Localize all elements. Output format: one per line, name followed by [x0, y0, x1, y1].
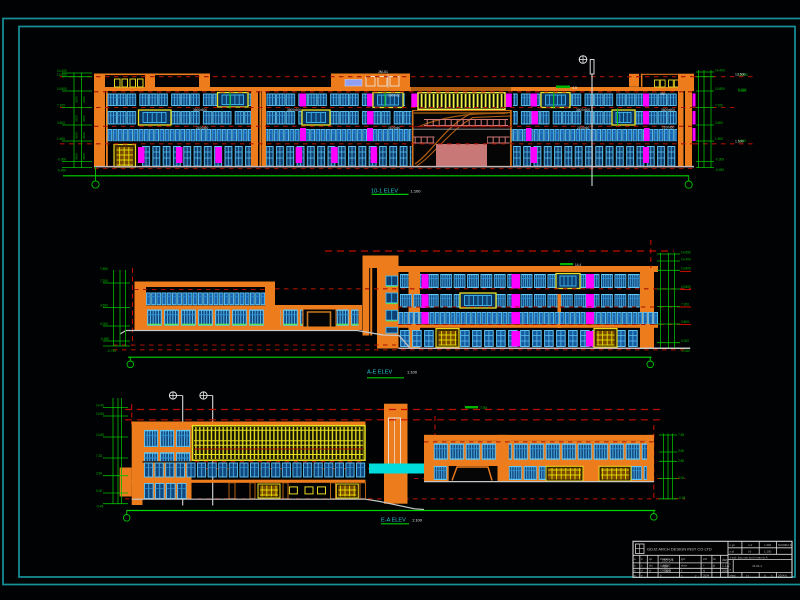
svg-text:1:100: 1:100	[411, 189, 422, 194]
svg-text:7.200: 7.200	[100, 279, 108, 283]
svg-text:-0.750: -0.750	[107, 349, 116, 353]
svg-text:2100x60: 2100x60	[388, 126, 400, 130]
svg-text:3600x60: 3600x60	[388, 94, 400, 98]
svg-text:13.500: 13.500	[735, 73, 745, 77]
svg-text:7.200: 7.200	[715, 104, 723, 108]
svg-text:jgfz: jgfz	[680, 557, 686, 561]
svg-text:7.20: 7.20	[96, 454, 102, 458]
svg-text:3.600: 3.600	[100, 304, 108, 308]
svg-text:1:100: 1:100	[764, 550, 772, 554]
svg-text:4500: 4500	[75, 153, 79, 160]
svg-text:360: 360	[660, 92, 666, 96]
svg-text:A-E ELEV: A-E ELEV	[367, 370, 392, 376]
svg-text:NO2004-6: NO2004-6	[778, 543, 792, 547]
svg-text:JS 04-1: JS 04-1	[752, 564, 762, 568]
svg-text:0.00: 0.00	[96, 489, 102, 493]
svg-text:x 302: x 302	[764, 543, 771, 547]
svg-text:2100x60: 2100x60	[662, 126, 674, 130]
svg-text:sh: sh	[713, 557, 716, 561]
svg-text:-0.300: -0.300	[57, 158, 66, 162]
svg-text:x gc: x gc	[730, 543, 736, 547]
svg-text:3600x600: 3600x600	[661, 108, 675, 112]
svg-text:3.600: 3.600	[681, 320, 689, 324]
svg-text:LW: LW	[703, 557, 707, 561]
svg-text:1.500: 1.500	[57, 137, 65, 141]
svg-text:x sub: x sub	[730, 556, 737, 560]
svg-text:3.600: 3.600	[715, 121, 723, 125]
svg-text:1.500: 1.500	[735, 140, 744, 144]
svg-text:0.00: 0.00	[678, 476, 684, 480]
svg-text:7.200: 7.200	[57, 104, 65, 108]
svg-text:14.400: 14.400	[681, 258, 691, 262]
svg-text:3600x600: 3600x600	[287, 108, 301, 112]
svg-text:n.4: n.4	[748, 543, 752, 547]
svg-text:jiao xue lou li mian tu A: jiao xue lou li mian tu A	[737, 556, 768, 560]
svg-text:#8A: #8A	[662, 564, 669, 568]
svg-text:1:100: 1:100	[412, 518, 423, 523]
svg-text:4.5: 4.5	[572, 86, 577, 90]
svg-text:2100x60: 2100x60	[577, 126, 589, 130]
svg-text:13.500: 13.500	[57, 73, 67, 77]
svg-text:3600: 3600	[75, 96, 79, 103]
svg-text:3600: 3600	[82, 96, 86, 103]
svg-text:10-1 ELEV: 10-1 ELEV	[371, 189, 398, 195]
svg-text:3.60: 3.60	[678, 449, 684, 453]
svg-text:3600x600: 3600x600	[193, 108, 207, 112]
svg-text:jd: jd	[712, 564, 716, 568]
svg-text:shj: shj	[649, 564, 653, 568]
svg-text:4500: 4500	[82, 153, 86, 160]
svg-text:-0.45: -0.45	[678, 496, 685, 500]
svg-text:0.000: 0.000	[681, 339, 689, 343]
svg-text:7.200: 7.200	[681, 303, 689, 307]
svg-text:2004: 2004	[703, 573, 710, 577]
svg-text:3.60: 3.60	[96, 472, 102, 476]
svg-text:E-A ELEV: E-A ELEV	[381, 518, 406, 524]
svg-text:2.80: 2.80	[678, 459, 684, 463]
svg-text:-0.450: -0.450	[100, 337, 109, 341]
svg-text:JM-01: JM-01	[378, 70, 388, 74]
svg-text:sheji: sheji	[730, 573, 736, 577]
svg-text:zt: zt	[649, 569, 651, 573]
svg-text:10.800: 10.800	[681, 285, 691, 289]
svg-text:1.500: 1.500	[715, 137, 723, 141]
svg-text:13.800: 13.800	[681, 267, 691, 271]
svg-text:1:100: 1:100	[407, 370, 418, 375]
svg-text:7.650: 7.650	[100, 267, 108, 271]
svg-text:t.6: t.6	[748, 550, 752, 554]
svg-text:13.50: 13.50	[96, 412, 104, 416]
svg-text:7.65: 7.65	[678, 433, 684, 437]
svg-text:-0.300: -0.300	[715, 158, 724, 162]
svg-text:9.000: 9.000	[738, 88, 747, 92]
svg-text:-0.45: -0.45	[96, 505, 103, 509]
svg-text:10.80: 10.80	[96, 433, 104, 437]
svg-text:14.850: 14.850	[681, 251, 691, 255]
svg-text:0.000: 0.000	[100, 322, 108, 326]
svg-text:3600x600: 3600x600	[576, 108, 590, 112]
svg-text:GDJZ ARCH DESIGN INST CO LTD: GDJZ ARCH DESIGN INST CO LTD	[647, 547, 712, 552]
svg-text:14.40: 14.40	[96, 404, 104, 408]
svg-text:dwg: dwg	[722, 558, 728, 562]
svg-text:2100x60: 2100x60	[196, 126, 208, 130]
svg-text:-0.450: -0.450	[681, 349, 690, 353]
svg-text:10.800: 10.800	[57, 87, 67, 91]
svg-text:shez: shez	[681, 564, 688, 568]
svg-text:-0.450: -0.450	[57, 169, 66, 173]
svg-text:2/06: 2/06	[722, 569, 729, 573]
svg-text:3600: 3600	[82, 115, 86, 122]
svg-text:3600: 3600	[75, 115, 79, 122]
svg-text:sjz: sjz	[649, 557, 653, 561]
svg-text:265 6-4: 265 6-4	[662, 559, 674, 563]
svg-text:3.600: 3.600	[57, 121, 65, 125]
svg-text:14.400: 14.400	[715, 69, 725, 73]
svg-text:10.800: 10.800	[715, 87, 725, 91]
svg-text:2004.6: 2004.6	[778, 573, 787, 577]
svg-text:-0.450: -0.450	[715, 168, 724, 172]
svg-text:300: 300	[665, 569, 671, 573]
svg-text:x jd: x jd	[730, 550, 735, 554]
svg-text:3600: 3600	[82, 132, 86, 139]
svg-text:3600: 3600	[75, 132, 79, 139]
